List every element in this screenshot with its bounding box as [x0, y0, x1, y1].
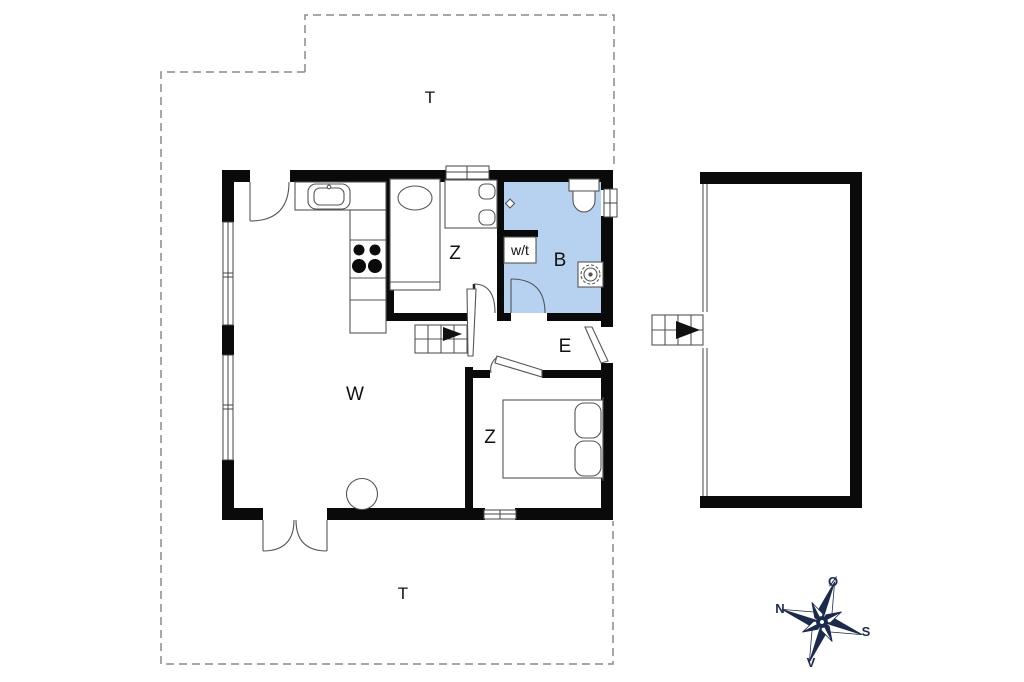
wall-bathroom-south-b: [547, 313, 613, 321]
bedroom-south-label: Z: [484, 427, 496, 448]
entrance-label: E: [559, 336, 572, 357]
bedroom-north-furniture: [390, 179, 497, 290]
wall-bathroom-south-a: [497, 313, 511, 321]
door-north: [250, 182, 289, 221]
wall: [601, 170, 613, 190]
living-room-label: W: [346, 384, 364, 405]
boundary-top-right: [305, 15, 614, 169]
wall-hall-west: [465, 367, 473, 520]
sink-symbol: [308, 184, 350, 209]
compass-rose-icon: Ø N S V: [769, 569, 874, 674]
wall: [222, 325, 234, 355]
compass-north-label: N: [775, 601, 784, 616]
window-living-west-2: [223, 355, 233, 460]
wall: [515, 508, 613, 520]
floor-plan: T T: [0, 0, 1024, 682]
door-bedroom-south: [491, 356, 542, 377]
entry-stairs-house: [415, 325, 467, 353]
door-french-south: [263, 520, 327, 551]
wall-hall-south-a: [473, 370, 490, 378]
annex-wall-right: [850, 172, 862, 508]
stove-circle-symbol: [347, 479, 378, 510]
wall-hall-south-b: [542, 370, 613, 378]
wall: [222, 170, 234, 222]
door-hall-east: [585, 327, 608, 363]
compass-east-label: Ø: [828, 574, 838, 589]
door-bedroom-north: [474, 284, 495, 313]
wall: [327, 508, 485, 520]
window-bedroom-south: [484, 510, 516, 519]
kitchen: [295, 182, 386, 333]
wall-utility-stub: [497, 230, 538, 237]
bedroom-north-label: Z: [449, 243, 461, 264]
terrace-bottom-label: T: [398, 584, 408, 603]
utility-label: w/t: [510, 242, 529, 258]
wall-bedroom-north-south: [386, 313, 473, 321]
floor-drain-symbol: [578, 262, 603, 287]
annex-wall-top: [700, 172, 862, 184]
wall: [222, 508, 263, 520]
double-bed: [503, 397, 603, 481]
wall-bathroom-west: [497, 182, 504, 321]
terrace-top-label: T: [425, 88, 435, 107]
compass-south-label: S: [862, 624, 871, 639]
annex-building: [652, 172, 862, 508]
door-hall-west: [467, 289, 476, 356]
washer-box: w/t: [504, 237, 536, 263]
compass-west-label: V: [807, 655, 816, 670]
entry-stairs-annex: [652, 315, 703, 345]
annex-open-side: [703, 184, 707, 496]
window-bathroom-east: [604, 189, 617, 217]
window-bedroom-north: [446, 166, 489, 179]
window-living-west-1: [223, 222, 233, 325]
single-bed-2: [445, 180, 497, 228]
annex-wall-bottom: [700, 496, 862, 508]
single-bed-1: [390, 179, 440, 290]
bathroom-label: B: [554, 250, 567, 271]
